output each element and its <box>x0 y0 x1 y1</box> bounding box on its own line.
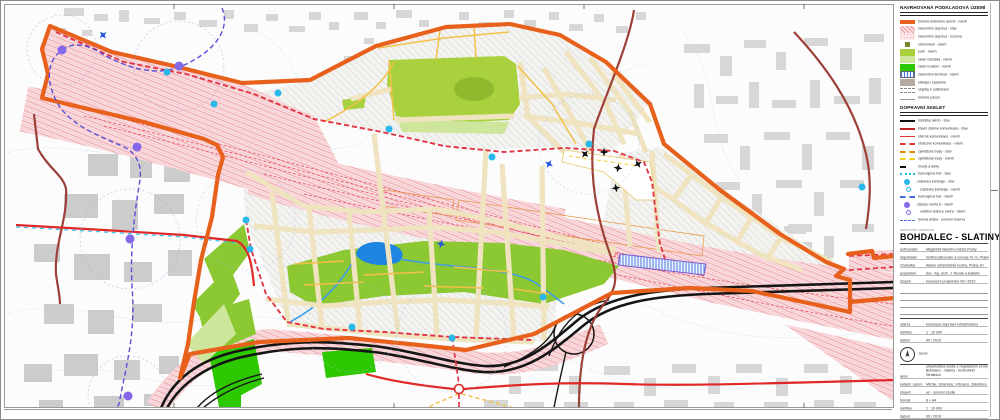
drawing-sheet: mapový podklad: polohopis a výškopis - d… <box>0 0 1000 420</box>
table-row: projektantdoc. Ing. arch. J. Novák a kol… <box>900 268 988 276</box>
ring-road-line <box>900 120 915 122</box>
title-block-table-1: pořizovatelMagistrát hlavního města Prah… <box>900 243 988 284</box>
main-road-line <box>900 128 915 130</box>
legend-item: stanice metra D - návrh <box>900 201 988 209</box>
table-row: stupeňkoncept k projednání 09 / 2019 <box>900 276 988 284</box>
legend-item: tramvajová trať - stav <box>900 171 988 179</box>
divider <box>900 12 988 16</box>
legend-item: mosty a lávky <box>900 163 988 171</box>
collector-road-line <box>900 136 915 137</box>
title-block-table-2: výkreskoncepce dopravní infrastruktury m… <box>900 318 988 343</box>
legend-item: hlavní sběrné komunikace - stav <box>900 125 988 133</box>
map-area <box>4 4 894 408</box>
green-light-swatch <box>900 56 915 63</box>
north-indicator: sever <box>900 347 988 362</box>
legend-item: zastávka tramvaje - návrh <box>900 186 988 194</box>
rail-reserve-swatch <box>900 33 915 40</box>
legend-item: železniční doprava - rezerva <box>900 33 988 41</box>
park-swatch <box>900 49 915 56</box>
legend-item: železniční terminál - návrh <box>900 71 988 79</box>
legend-item: hranice parcel <box>900 94 988 102</box>
legend-item: zeleň izolační - návrh <box>900 64 988 72</box>
metro-vestibule-dot <box>906 210 911 215</box>
legend-item: cyklistické trasy - stav <box>900 148 988 156</box>
cable-car-line <box>900 220 915 221</box>
legend-item: železniční doprava - stav <box>900 26 988 34</box>
service-road-line <box>900 143 915 145</box>
north-arrow-icon <box>900 347 915 362</box>
tram-line <box>900 173 915 175</box>
table-row: pořizovatelMagistrát hlavního města Prah… <box>900 244 988 252</box>
legend-item: cyklistické trasy - návrh <box>900 156 988 164</box>
legend-item: park - návrh <box>900 48 988 56</box>
north-caption: sever <box>919 353 928 357</box>
legend-item: zeleň městská - návrh <box>900 56 988 64</box>
tram-proposed-line <box>900 196 915 198</box>
legend-item: hranice řešeného území - návrh <box>900 18 988 26</box>
bike-route-proposed-line <box>900 158 915 160</box>
legend-item: objekty k odstranění <box>900 86 988 94</box>
project-subtitle: urbanistická studie s regulačními prvky <box>900 229 934 231</box>
boundary-swatch <box>900 20 915 24</box>
legend-item: tramvajová trať - návrh <box>900 193 988 201</box>
title-block-table-3: akceurbanistická studie s regulačními pr… <box>900 364 988 420</box>
legend-panel: NAVRHOVANÁ PODKLADOVÁ ÚZEMÍ hranice řeše… <box>898 3 991 417</box>
tree-swatch <box>905 42 910 47</box>
bike-route-line <box>900 151 915 153</box>
divider <box>900 112 988 116</box>
map-canvas <box>4 4 894 408</box>
green-bright-swatch <box>900 64 915 71</box>
legend-item: lanová dráha - územní rezerva <box>900 216 988 224</box>
legend-item: stávající zástavba <box>900 79 988 87</box>
footer-divider <box>4 409 892 410</box>
terminal-swatch <box>900 71 915 78</box>
table-row: katastr. územíMichle, Strašnice, Vršovic… <box>900 379 988 387</box>
legend-item: vestibul stanice metra - návrh <box>900 209 988 217</box>
table-row: objednatelInstitut plánování a rozvoje h… <box>900 252 988 260</box>
legend-transport-title: DOPRAVNÍ SKELET <box>900 105 969 110</box>
legend-item: sběrné komunikace - návrh <box>900 133 988 141</box>
parcel-swatch <box>900 99 915 100</box>
footer-note: mapový podklad: polohopis a výškopis - d… <box>8 411 371 420</box>
legend-item: stromořadí - návrh <box>900 41 988 49</box>
tram-stop-proposed-dot <box>906 187 911 192</box>
table-row: zhotovitelAtelier urbanistické tvorby, P… <box>900 260 988 268</box>
rail-swatch <box>900 26 915 33</box>
legend-item: obslužné komunikace - návrh <box>900 140 988 148</box>
table-row: datum09 / 2019 <box>900 335 988 343</box>
legend-item: městský okruh - stav <box>900 118 988 126</box>
legend-item: zastávka tramvaje - stav <box>900 178 988 186</box>
legend-landuse-title: NAVRHOVANÁ PODKLADOVÁ ÚZEMÍ <box>900 6 969 11</box>
blank-rules <box>900 287 988 315</box>
building-swatch <box>900 79 915 86</box>
metro-station-dot <box>904 202 910 208</box>
demolition-swatch <box>900 88 915 93</box>
tram-stop-dot <box>904 179 910 185</box>
bridge-line <box>900 166 906 168</box>
